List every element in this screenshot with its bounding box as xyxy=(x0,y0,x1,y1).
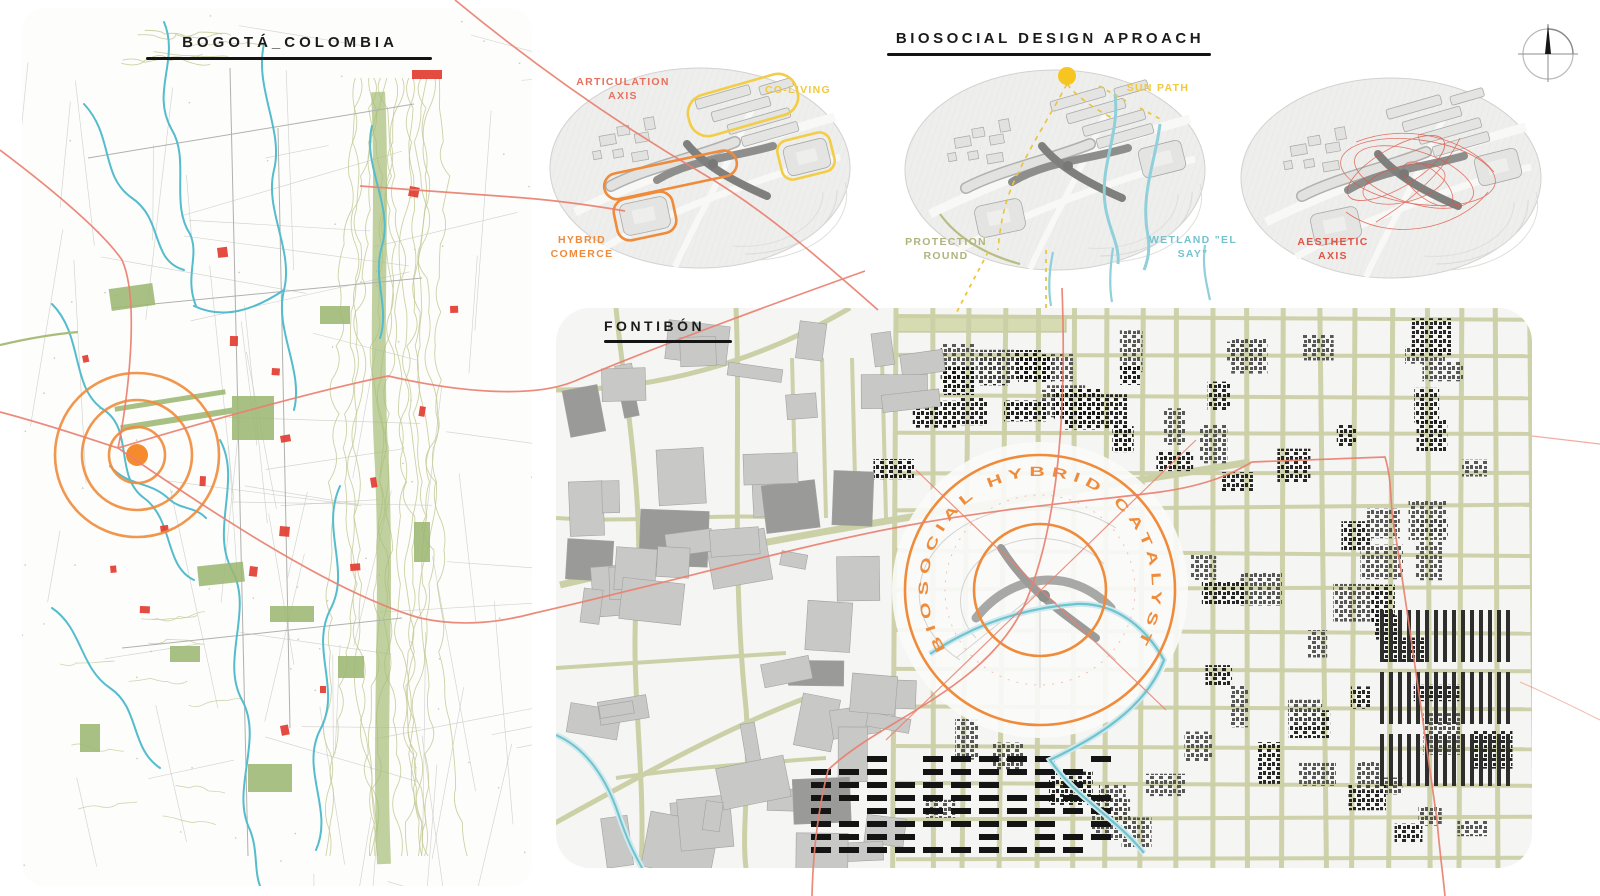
fontibon-title-text: FONTIBÓN xyxy=(604,318,744,334)
bogota-title-underline xyxy=(146,57,432,60)
label-articulation-axis: ARTICULATION AXIS xyxy=(567,76,679,103)
label-hybrid-comerce: HYBRID COMERCE xyxy=(532,234,632,261)
north-arrow-icon xyxy=(1512,16,1582,91)
sun-icon xyxy=(1058,67,1076,85)
bogota-contour-lines xyxy=(60,30,467,856)
site-rings xyxy=(55,373,219,537)
fontibon-title-underline xyxy=(604,340,732,343)
bogota-title: BOGOTÁ_COLOMBIA xyxy=(150,34,430,60)
label-wetland-el-say: WETLAND "EL SAY" xyxy=(1143,234,1243,261)
approach-title-underline xyxy=(887,53,1211,56)
approach-title: BIOSOCIAL DESIGN APROACH xyxy=(885,30,1215,56)
fontibon-map: BIOSOCIAL HYBRID CATALYST xyxy=(556,308,1532,868)
bogota-street-grid xyxy=(22,15,532,886)
approach-title-text: BIOSOCIAL DESIGN APROACH xyxy=(885,30,1215,47)
label-aesthetic-axis: AESTHETIC AXIS xyxy=(1283,236,1383,263)
label-co-living: CO-LIVING xyxy=(752,84,844,98)
fontibon-title: FONTIBÓN xyxy=(604,318,744,343)
bogota-title-text: BOGOTÁ_COLOMBIA xyxy=(150,34,430,51)
fontibon-map-drawing: BIOSOCIAL HYBRID CATALYST xyxy=(556,308,1532,868)
label-sun-path: SUN PATH xyxy=(1117,82,1199,96)
site-epicenter-icon xyxy=(126,444,148,466)
label-protection-round: PROTECTION ROUND xyxy=(890,236,1002,263)
bogota-map-drawing xyxy=(22,8,532,886)
bogota-map xyxy=(22,8,532,886)
presentation-board: BIOSOCIAL HYBRID CATALYST xyxy=(0,0,1600,896)
